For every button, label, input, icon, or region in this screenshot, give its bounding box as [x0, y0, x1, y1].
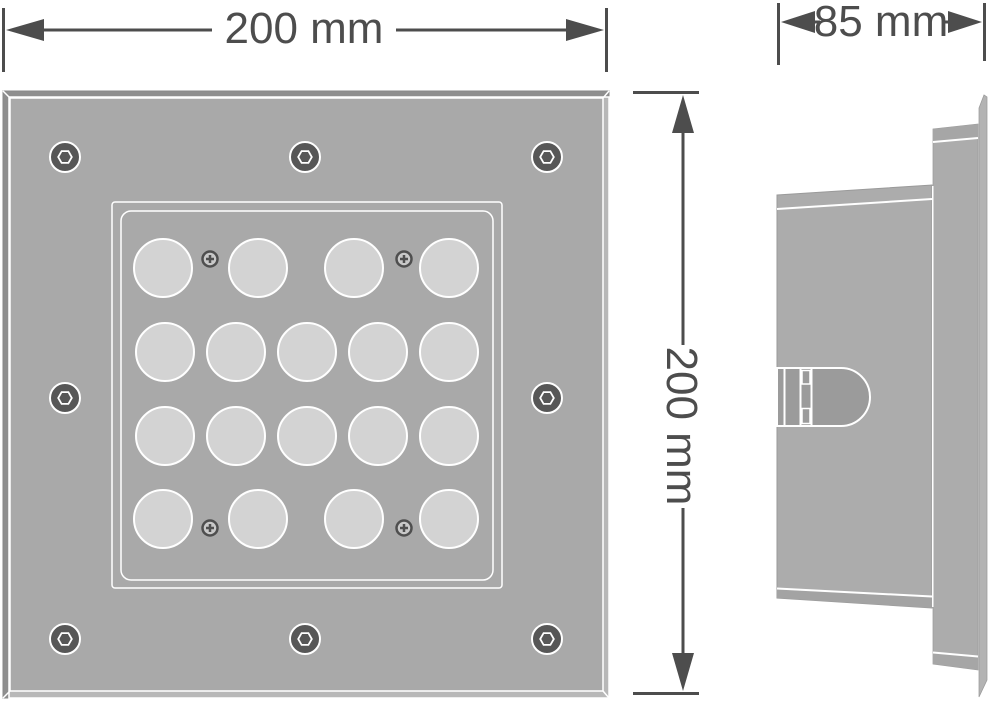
technical-drawing: 200 mm 85 mm 200 mm	[0, 0, 1000, 704]
cross-screw-icon	[397, 521, 412, 536]
drawing-canvas: 200 mm 85 mm 200 mm	[0, 0, 1000, 704]
screw-disc	[532, 142, 562, 172]
dimension-depth: 85 mm	[777, 0, 986, 65]
arrow-left-icon	[6, 19, 44, 41]
led-circle	[136, 407, 194, 465]
flange-profile	[933, 124, 978, 670]
led-circle	[420, 239, 478, 297]
extension-tick-left	[2, 8, 5, 72]
cross-screw-icon	[203, 521, 218, 536]
led-circle	[229, 239, 287, 297]
hex-screw-icon	[50, 142, 80, 172]
clip-notch-bottom	[802, 409, 810, 424]
led-circle	[136, 323, 194, 381]
hex-screw-icon	[290, 624, 320, 654]
led-circle	[325, 490, 383, 548]
side-view	[777, 95, 987, 697]
arrow-right-icon	[948, 11, 982, 33]
screw-disc	[290, 142, 320, 172]
dimension-width: 200 mm	[2, 4, 608, 72]
hex-screw-icon	[50, 383, 80, 413]
extension-tick-bottom	[633, 692, 699, 695]
cross-screw-icon	[203, 252, 218, 267]
led-circle	[349, 407, 407, 465]
arrow-left-icon	[781, 11, 815, 33]
dimension-height: 200 mm	[633, 91, 706, 695]
led-circle	[207, 407, 265, 465]
extension-tick-right	[983, 3, 986, 61]
clip-body	[777, 368, 870, 426]
led-circle	[278, 407, 336, 465]
clip-notch-top	[802, 371, 810, 385]
rim-edge-sliver	[979, 95, 987, 697]
depth-dimension-label: 85 mm	[814, 0, 948, 46]
hex-screw-icon	[532, 624, 562, 654]
height-dimension-label: 200 mm	[657, 347, 706, 506]
screw-disc	[50, 383, 80, 413]
hex-screw-icon	[50, 624, 80, 654]
arrow-up-icon	[672, 95, 694, 133]
front-view	[3, 91, 609, 698]
mounting-clip	[777, 368, 870, 426]
arrow-down-icon	[672, 653, 694, 691]
led-circle	[278, 323, 336, 381]
cross-screw-icon	[397, 252, 412, 267]
led-circle	[134, 490, 192, 548]
led-circle	[134, 239, 192, 297]
led-circle	[349, 323, 407, 381]
hex-screw-icon	[532, 142, 562, 172]
extension-tick-left	[777, 3, 780, 65]
arrow-right-icon	[566, 19, 604, 41]
screw-disc	[50, 624, 80, 654]
led-circle	[207, 323, 265, 381]
screw-disc	[532, 383, 562, 413]
led-circle	[420, 323, 478, 381]
led-circle	[420, 407, 478, 465]
screw-disc	[532, 624, 562, 654]
extension-tick-right	[605, 8, 608, 72]
screw-disc	[290, 624, 320, 654]
width-dimension-label: 200 mm	[225, 4, 384, 53]
screw-disc	[50, 142, 80, 172]
extension-tick-top	[633, 91, 699, 94]
hex-screw-icon	[290, 142, 320, 172]
hex-screw-icon	[532, 383, 562, 413]
led-circle	[420, 490, 478, 548]
led-circle	[325, 239, 383, 297]
led-circle	[229, 490, 287, 548]
